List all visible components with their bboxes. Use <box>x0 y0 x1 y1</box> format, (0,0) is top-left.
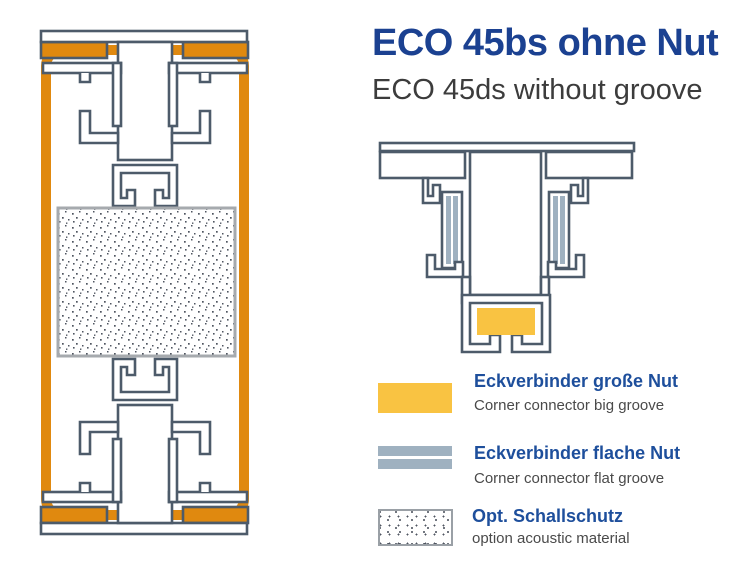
corner-connector-flat-groove <box>560 196 565 264</box>
legend-label-acoustic-en: option acoustic material <box>472 531 630 548</box>
legend-label-acoustic-de: Opt. Schallschutz <box>472 507 623 527</box>
profile-slab <box>380 152 465 178</box>
legend-label-flat-groove-en: Corner connector flat groove <box>474 471 664 488</box>
profile-slab <box>546 152 632 178</box>
legend-swatch-acoustic <box>378 509 453 546</box>
profile-web <box>470 152 541 295</box>
flat-groove-housing <box>442 192 462 268</box>
upper-profile <box>41 31 248 206</box>
corner-connector-big-groove <box>477 308 535 335</box>
legend-label-big-groove-de: Eckverbinder große Nut <box>474 372 678 392</box>
flat-groove-housing <box>549 192 569 268</box>
right-profile-diagram <box>370 135 640 360</box>
legend-swatch-flat-groove-bar <box>378 459 452 469</box>
corner-connector-flat-groove <box>446 196 451 264</box>
profile-top-bar <box>380 143 634 151</box>
legend-swatch-flat-groove-bar <box>378 446 452 456</box>
left-profile-diagram <box>0 0 290 567</box>
legend-label-big-groove-en: Corner connector big groove <box>474 398 664 415</box>
profile-hook <box>423 178 440 203</box>
legend-label-flat-groove-de: Eckverbinder flache Nut <box>474 444 680 464</box>
corner-connector-flat-groove <box>553 196 558 264</box>
page-subtitle: ECO 45ds without groove <box>372 74 702 107</box>
legend-swatch-big-groove <box>378 383 452 413</box>
infographic-page: { "header": { "title": "ECO 45bs ohne Nu… <box>0 0 756 567</box>
corner-connector-flat-groove <box>453 196 458 264</box>
profile-hook <box>571 178 588 203</box>
lower-profile <box>41 359 248 534</box>
acoustic-material-block <box>58 208 235 356</box>
page-title: ECO 45bs ohne Nut <box>372 22 718 65</box>
